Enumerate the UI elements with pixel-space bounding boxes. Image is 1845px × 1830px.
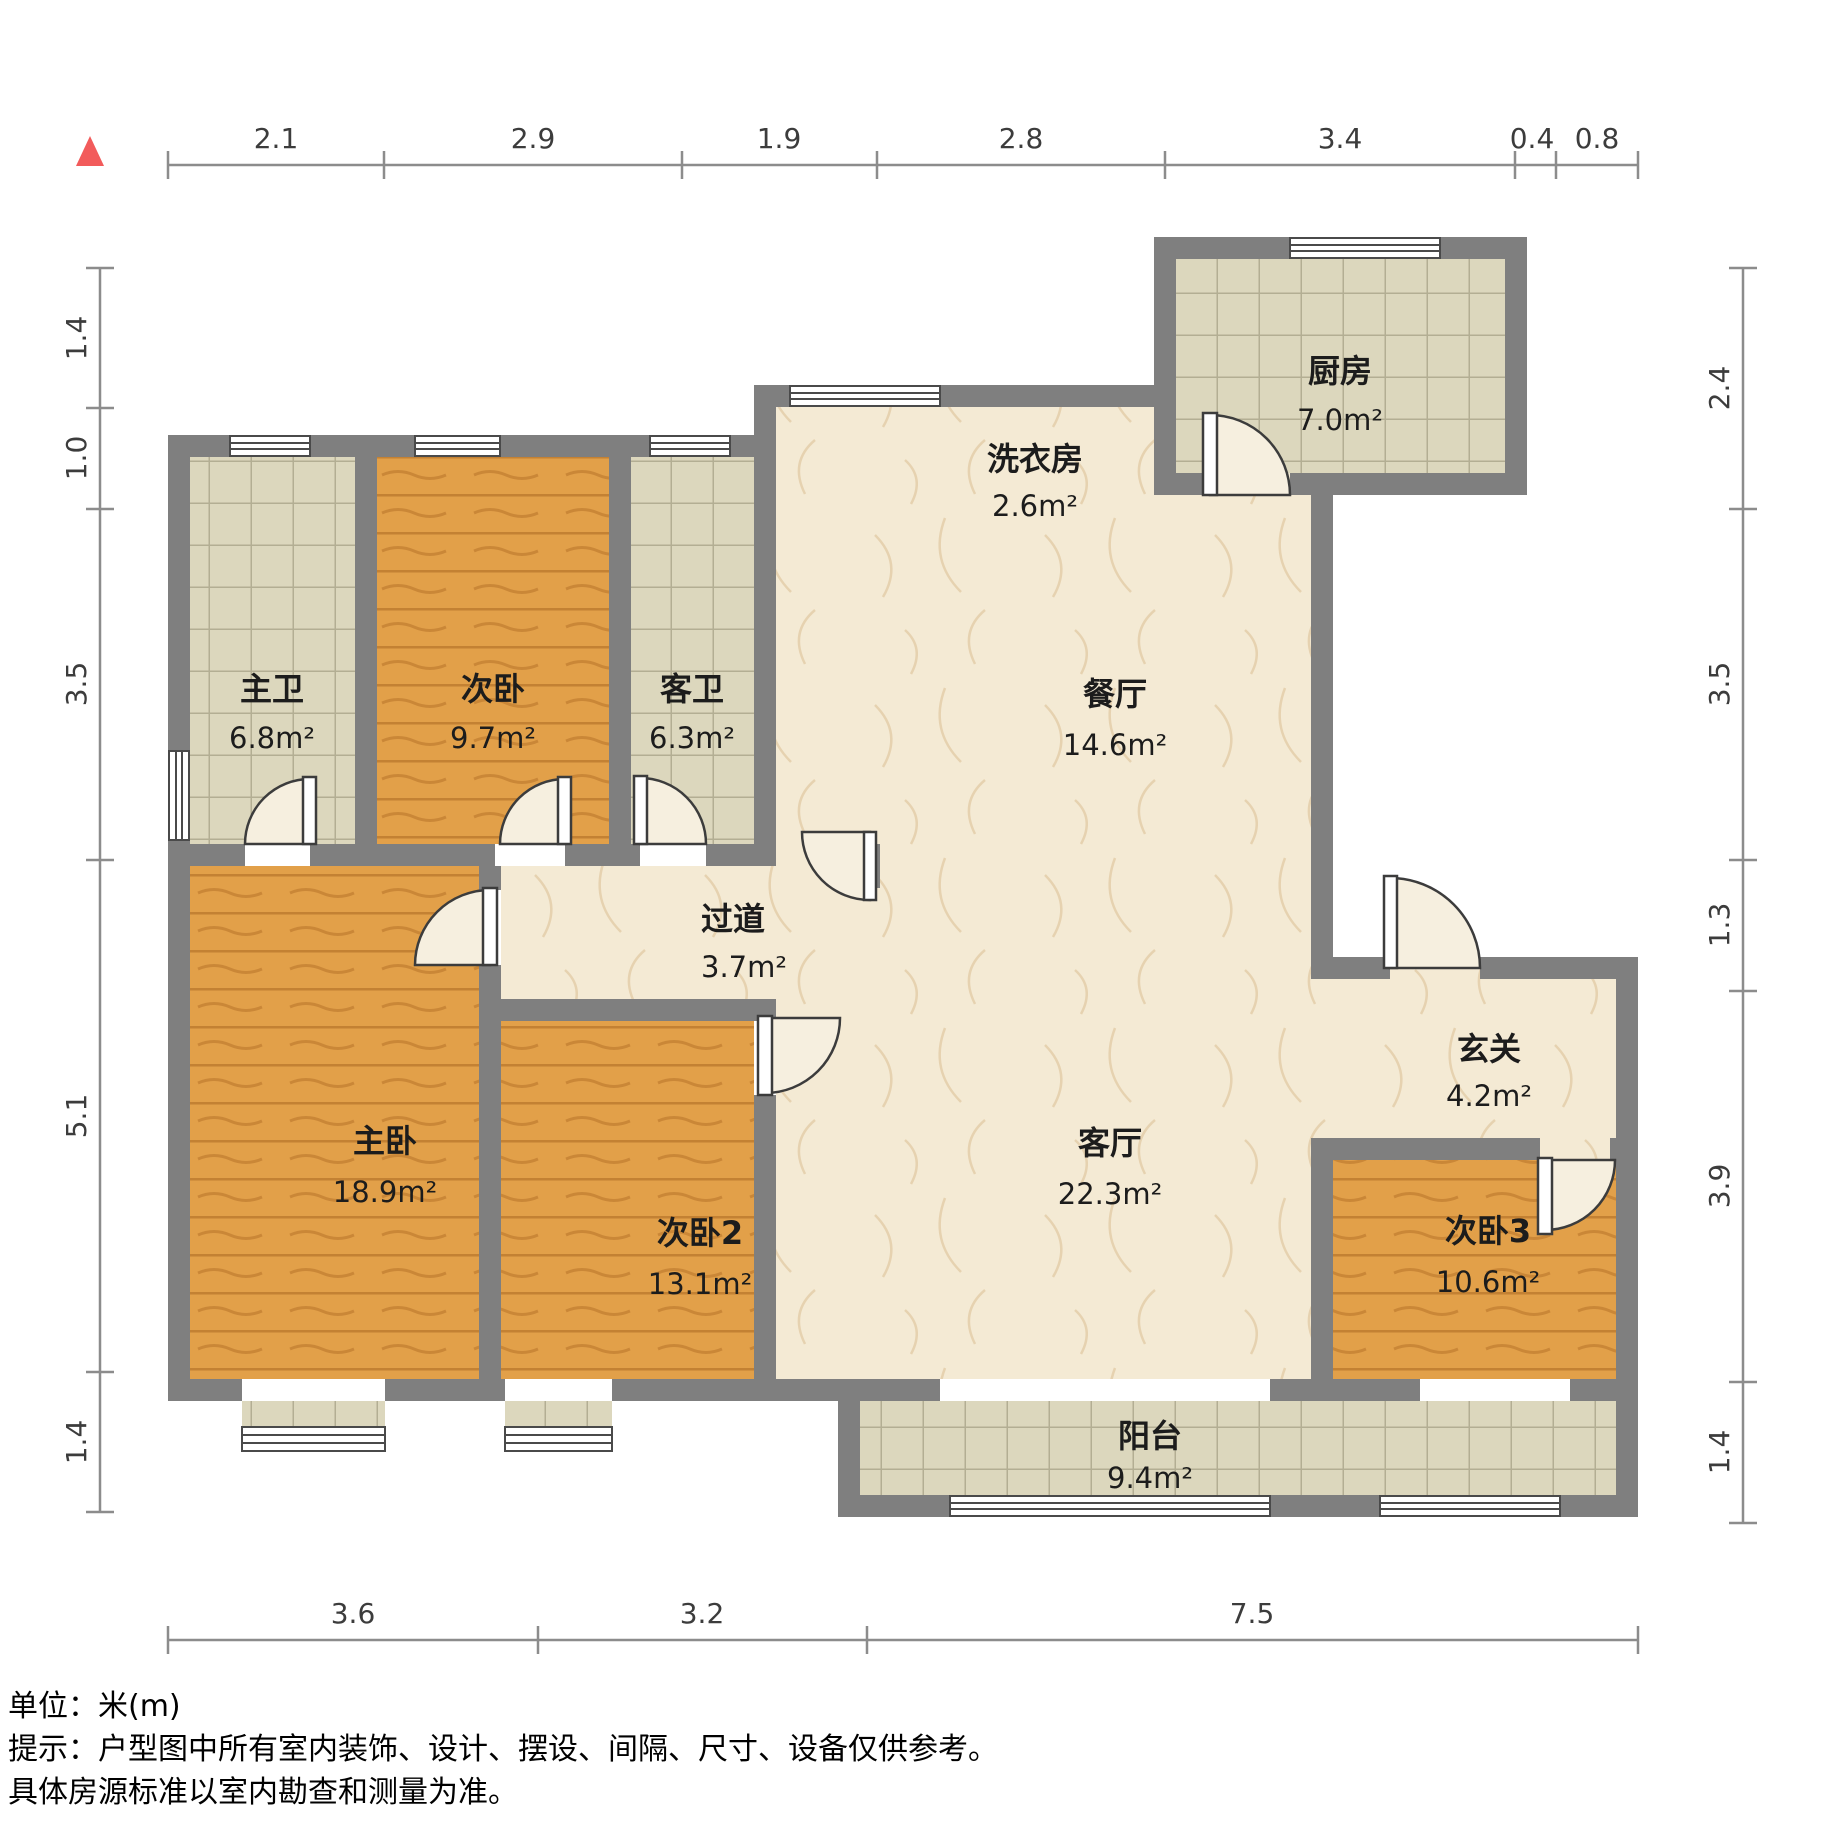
svg-text:14.6m²: 14.6m² (1063, 728, 1167, 762)
window (415, 436, 500, 456)
dimension-top: 2.1 2.9 1.9 2.8 3.4 0.4 0.8 (168, 122, 1638, 179)
bay-window (505, 1427, 612, 1451)
svg-text:2.8: 2.8 (999, 122, 1044, 155)
svg-text:餐厅: 餐厅 (1083, 675, 1147, 713)
floor-balcony (860, 1401, 1616, 1495)
svg-text:1.4: 1.4 (60, 1420, 93, 1465)
svg-text:6.8m²: 6.8m² (229, 721, 315, 755)
floor-bay-bedroom2 (505, 1401, 612, 1427)
svg-text:6.3m²: 6.3m² (649, 721, 735, 755)
svg-text:18.9m²: 18.9m² (333, 1175, 437, 1209)
svg-text:3.6: 3.6 (331, 1597, 376, 1630)
svg-text:阳台: 阳台 (1118, 1417, 1182, 1455)
footer-tip-line1: 提示：户型图中所有室内装饰、设计、摆设、间隔、尺寸、设备仅供参考。 (8, 1732, 998, 1767)
floor-bedroom2 (501, 1021, 754, 1379)
svg-text:7.5: 7.5 (1230, 1597, 1275, 1630)
svg-text:4.2m²: 4.2m² (1446, 1079, 1532, 1113)
svg-text:2.4: 2.4 (1703, 366, 1736, 411)
bay-window (242, 1427, 385, 1451)
svg-text:3.5: 3.5 (60, 662, 93, 707)
svg-text:次卧3: 次卧3 (1445, 1212, 1531, 1250)
floorplan-page: 主卫 6.8m² 次卧 9.7m² 客卫 6.3m² 洗衣房 2.6m² 厨房 … (0, 0, 1845, 1830)
svg-text:1.4: 1.4 (1703, 1430, 1736, 1475)
svg-text:1.9: 1.9 (757, 122, 802, 155)
dimension-bottom: 3.6 3.2 7.5 (168, 1597, 1638, 1654)
svg-text:次卧: 次卧 (461, 670, 525, 708)
footer-tip-line2: 具体房源标准以室内勘查和测量为准。 (8, 1775, 518, 1810)
svg-text:1.0: 1.0 (60, 436, 93, 481)
window (790, 386, 940, 406)
svg-text:3.5: 3.5 (1703, 662, 1736, 707)
svg-text:2.1: 2.1 (254, 122, 299, 155)
floorplan-canvas: 主卫 6.8m² 次卧 9.7m² 客卫 6.3m² 洗衣房 2.6m² 厨房 … (0, 0, 1845, 1830)
footer-unit: 单位：米(m) (8, 1689, 181, 1724)
dimension-right: 2.4 3.5 1.3 3.9 1.4 (1703, 268, 1757, 1523)
svg-text:客厅: 客厅 (1078, 1124, 1142, 1162)
svg-text:1.3: 1.3 (1703, 903, 1736, 948)
window (950, 1496, 1270, 1516)
svg-text:13.1m²: 13.1m² (648, 1267, 752, 1301)
window (230, 436, 310, 456)
svg-text:2.6m²: 2.6m² (992, 489, 1078, 523)
svg-text:3.7m²: 3.7m² (701, 950, 787, 984)
svg-text:2.9: 2.9 (511, 122, 556, 155)
svg-text:洗衣房: 洗衣房 (987, 440, 1083, 478)
svg-text:3.2: 3.2 (680, 1597, 725, 1630)
window (1290, 238, 1440, 258)
svg-text:主卫: 主卫 (240, 670, 304, 708)
svg-text:主卧: 主卧 (353, 1122, 417, 1160)
svg-text:0.4: 0.4 (1510, 122, 1555, 155)
svg-text:7.0m²: 7.0m² (1297, 403, 1383, 437)
svg-text:10.6m²: 10.6m² (1436, 1265, 1540, 1299)
svg-text:9.4m²: 9.4m² (1107, 1461, 1193, 1495)
svg-text:0.8: 0.8 (1575, 122, 1620, 155)
svg-text:玄关: 玄关 (1457, 1030, 1521, 1068)
floor-bedroom-top (377, 457, 609, 844)
window (169, 751, 189, 840)
window (650, 436, 730, 456)
floor-master-bath (190, 457, 355, 844)
north-arrow-icon (76, 136, 104, 166)
svg-text:3.9: 3.9 (1703, 1164, 1736, 1209)
window (1380, 1496, 1560, 1516)
floor-bay-master (242, 1401, 385, 1427)
svg-text:9.7m²: 9.7m² (450, 721, 536, 755)
svg-text:3.4: 3.4 (1318, 122, 1363, 155)
svg-text:22.3m²: 22.3m² (1058, 1177, 1162, 1211)
svg-text:过道: 过道 (701, 900, 765, 938)
svg-text:客卫: 客卫 (660, 670, 724, 708)
svg-text:次卧2: 次卧2 (657, 1214, 743, 1252)
svg-text:5.1: 5.1 (60, 1094, 93, 1139)
svg-text:1.4: 1.4 (60, 316, 93, 361)
footer-notes: 单位：米(m) 提示：户型图中所有室内装饰、设计、摆设、间隔、尺寸、设备仅供参考… (8, 1689, 998, 1810)
door-entry (1384, 876, 1480, 968)
svg-text:厨房: 厨房 (1308, 352, 1372, 390)
dimension-left: 1.4 1.0 3.5 5.1 1.4 (60, 268, 114, 1512)
